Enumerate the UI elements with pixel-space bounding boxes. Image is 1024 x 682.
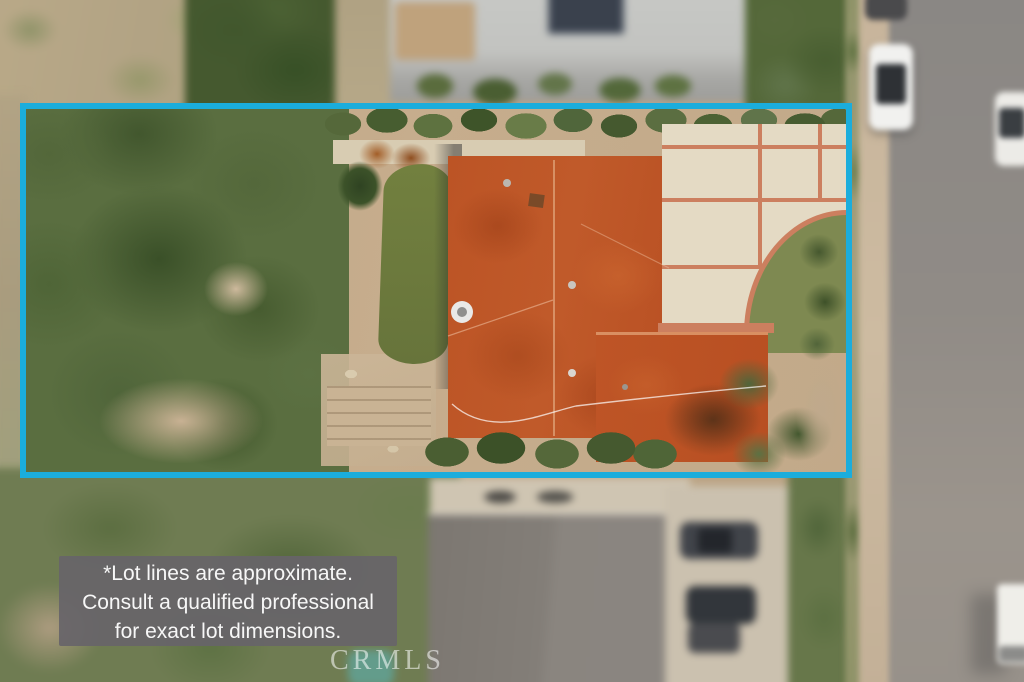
truck-cab: [999, 646, 1024, 662]
neighbor-house-roof-bottom: [428, 512, 670, 682]
disclaimer-line-2: Consult a qualified professional: [59, 588, 397, 617]
car-windshield: [698, 528, 732, 553]
dark-car-2: [686, 586, 756, 624]
top-right-hedge: [745, 0, 860, 110]
parked-dark-car: [865, 0, 907, 20]
crmls-watermark: CRMLS: [330, 645, 445, 677]
car-windshield: [876, 64, 906, 104]
lot-line-disclaimer: *Lot lines are approximate. Consult a qu…: [59, 556, 397, 646]
disclaimer-line-3: for exact lot dimensions.: [59, 617, 397, 646]
lot-line-outline: [20, 103, 852, 478]
car-windshield: [999, 108, 1024, 138]
aerial-photo-scene: *Lot lines are approximate. Consult a qu…: [0, 0, 1024, 682]
solar-panel: [548, 0, 624, 34]
top-tree-grove: [185, 0, 350, 120]
disclaimer-line-1: *Lot lines are approximate.: [59, 559, 397, 588]
street: [845, 0, 1024, 682]
dark-car-3: [688, 623, 740, 653]
white-box-truck: [997, 584, 1024, 664]
parked-vehicles-row: [470, 486, 590, 508]
passing-white-car: [995, 92, 1024, 166]
parked-white-car: [869, 44, 913, 130]
dark-car-1: [680, 522, 758, 559]
neighbor-shed-roof: [395, 2, 475, 60]
